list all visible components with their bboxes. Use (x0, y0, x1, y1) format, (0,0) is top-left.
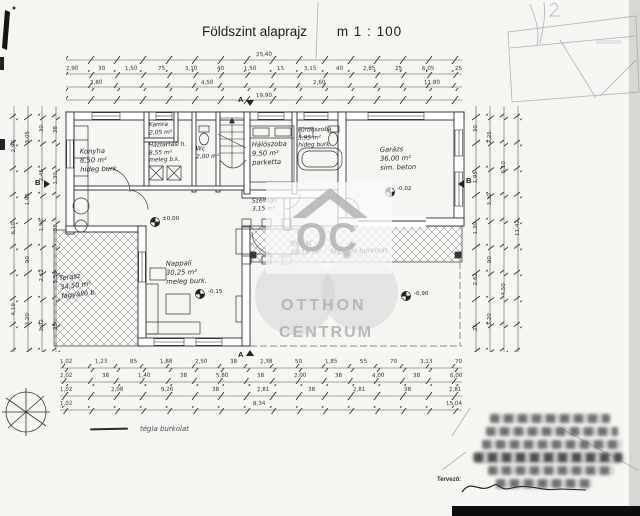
dim-value: 38 (53, 224, 59, 231)
room-label-szelfogo: Szélfogó 3,15 m² (252, 197, 298, 214)
room-label-tornac: Tornác 28,18 m² fagyálló burkolat (290, 236, 420, 257)
dim-value: 2,62 (39, 269, 45, 281)
dim-value: 9,26 (161, 387, 174, 393)
dim-value: 2,60 (313, 80, 326, 86)
dim-value: 3,80 (90, 80, 103, 86)
dim-value: 4,50 (501, 283, 507, 295)
dim-value: 4,00 (372, 373, 385, 379)
dim-value: 90 (25, 256, 31, 263)
room-note: meleg burk. (166, 276, 234, 287)
dim-value: 2,90 (11, 140, 17, 152)
dim-value: 38 (308, 387, 315, 393)
dim-value: 1,20 (487, 313, 493, 325)
room-label-terasz: Terasz 34,50 m² fagyálló b. (59, 268, 118, 301)
room-area: 2,00 m² (196, 153, 224, 161)
dim-value: 1,30 (473, 222, 479, 234)
level-value: -0,90 (414, 291, 428, 297)
legend: tégla burkolat (90, 425, 189, 433)
dim-value: 1,30 (53, 172, 59, 184)
dim-value: 25 (455, 66, 462, 72)
dim-value: 3,02 (39, 319, 45, 331)
room-note: fagyálló burkolat (330, 246, 388, 256)
dim-value: 38 (230, 359, 237, 365)
legend-line-swatch (90, 427, 128, 430)
room-note: meleg b.k. (149, 157, 201, 166)
dim-value: 4,50 (201, 80, 214, 86)
room-label-wc: Wc 2,00 m² (196, 146, 224, 162)
architect-stamp (482, 414, 637, 492)
level-value: -0,15 (208, 289, 222, 295)
dim-value: 3,10 (185, 66, 198, 72)
dim-value: 2,38 (260, 359, 273, 365)
dim-value: 6,10 (11, 222, 17, 234)
dim-value: 2,81 (353, 387, 366, 393)
dim-value: 25 (53, 323, 59, 330)
drawing-title: Földszint alaprajz m 1 : 100 (202, 24, 402, 39)
dim-value: 1,95 (25, 193, 31, 205)
level-value: -0,02 (397, 186, 411, 192)
scanned-floor-plan-page: Földszint alaprajz m 1 : 100 Konyha 8,50… (0, 0, 640, 516)
dim-col-left-mid2: 302,451,502,623,02 (36, 106, 48, 350)
room-label-haztartasi: Háztartási h. 8,55 m² meleg b.k. (149, 141, 202, 165)
dim-row-top-4: 19,90 (66, 93, 462, 99)
dim-value: 3,05 (25, 131, 31, 143)
dim-value: 2,20 (25, 313, 31, 325)
room-note: parketta (252, 157, 310, 167)
dim-value: 4,19 (11, 303, 17, 315)
dim-value: 19,90 (256, 93, 272, 100)
dim-value: 2,81 (257, 387, 270, 393)
stamp-text-row (474, 453, 622, 462)
dim-value: 1,23 (95, 359, 108, 365)
stamp-text-row (486, 427, 618, 436)
dim-value: 70 (455, 359, 462, 365)
dim-value: 1,50 (39, 219, 45, 231)
dim-value: 25,40 (256, 52, 272, 59)
dim-value: 85 (130, 359, 137, 365)
dim-value: 30 (98, 66, 105, 72)
dim-value: 40 (336, 66, 343, 72)
dim-value: 2,08 (111, 387, 124, 393)
dim-col-left-inner: 381,30385,5625 (50, 106, 62, 350)
dim-value: 6,00 (449, 373, 462, 379)
drawing-scale: m 1 : 100 (337, 24, 402, 39)
dim-value: 2,25 (487, 131, 493, 143)
dim-value: 3,30 (487, 193, 493, 205)
dim-value: 11,42 (515, 220, 521, 236)
dim-value: 2,81 (449, 387, 462, 393)
dim-value: 1,02 (60, 387, 73, 393)
dim-col-right-inner: 301,951,302,6225 (470, 106, 482, 350)
dim-value: 2,85 (363, 66, 376, 72)
stamp-text-row (490, 414, 610, 423)
dim-value: 1,50 (125, 66, 138, 72)
dim-value: 2,02 (60, 373, 73, 379)
stamp-text-row (488, 466, 614, 475)
dim-value: 15,04 (446, 401, 462, 408)
text-overlay: Földszint alaprajz m 1 : 100 Konyha 8,50… (0, 0, 640, 516)
dim-row-top-2: 2,90301,50753,10401,50153,15402,85256,05… (66, 66, 462, 72)
stamp-text-row (496, 479, 592, 488)
dim-value: 70 (390, 359, 397, 365)
dim-value: 6,05 (422, 66, 435, 72)
dim-row-bottom-4: 1,028,3415,04 (60, 401, 462, 407)
room-area: 3,15 m² (252, 205, 298, 214)
room-label-kamra: Kamra 2,05 m² (149, 122, 183, 138)
dim-row-bottom-2: 2,02381,40385,80382,00384,00386,00 (60, 373, 462, 379)
dim-value: 1,02 (60, 401, 73, 407)
designer-label: Tervező: (437, 477, 461, 483)
dim-value: 25 (473, 324, 479, 331)
dim-value: 40 (217, 66, 224, 72)
room-label-garazs: Garázs 36,00 m² sim. beton (380, 144, 447, 172)
dim-row-bottom-3: 1,022,089,26382,81382,81382,81 (60, 387, 462, 393)
dim-col-left-mid1: 3,051,95902,20 (22, 106, 34, 350)
dim-value: 38 (102, 373, 109, 379)
stamp-text-row (482, 440, 622, 449)
room-note: hideg burk. (298, 142, 352, 151)
dim-value: 90 (487, 256, 493, 263)
dim-col-right-outer: 11,42 (512, 106, 524, 350)
dim-value: 11,80 (424, 80, 440, 87)
dim-value: 38 (335, 373, 342, 379)
dim-value: 2,62 (473, 273, 479, 285)
dim-value: 3,13 (420, 359, 433, 365)
dim-value: 30 (39, 125, 45, 132)
dim-value: 1,88 (160, 359, 173, 365)
dim-row-top-1: 25,40 (66, 52, 462, 58)
room-area: 28,18 m² (290, 248, 321, 258)
dim-value: 38 (257, 373, 264, 379)
dim-col-right-mid2: 2,253,30901,20 (484, 106, 496, 350)
dim-value: 3,15 (304, 66, 317, 72)
dim-value: 1,50 (244, 66, 257, 72)
room-note: hideg burk. (80, 164, 132, 174)
dim-value: 30 (473, 125, 479, 132)
dim-row-bottom-1: 1,021,23851,882,50382,38501,8555703,1370 (60, 359, 462, 365)
dim-value: 15 (276, 66, 283, 72)
room-area: 2,05 m² (149, 129, 183, 138)
dim-value: 2,90 (66, 66, 79, 72)
page-title: Földszint alaprajz (202, 24, 307, 39)
room-note: sim. beton (380, 162, 446, 173)
dim-value: 2,45 (39, 169, 45, 181)
dim-col-right-mid1: 6,104,50 (498, 106, 510, 350)
dim-value: 38 (53, 126, 59, 133)
dim-value: 25 (395, 66, 402, 72)
dim-value: 1,85 (325, 359, 338, 365)
room-label-konyha: Konyha 8,50 m² hideg burk. (80, 146, 133, 174)
dim-value: 50 (295, 359, 302, 365)
level-value: ±0,00 (162, 216, 179, 222)
dim-value: 38 (413, 373, 420, 379)
dim-col-left-outer: 2,906,104,19 (8, 106, 20, 350)
dim-value: 55 (360, 359, 367, 365)
section-letter-bottom: A (238, 350, 243, 359)
dim-value: 2,50 (195, 359, 208, 365)
dim-value: 75 (158, 66, 165, 72)
dim-value: 1,40 (138, 373, 151, 379)
room-label-furdoszoba: Fürdőszoba 5,95 m² hideg burk. (298, 126, 353, 150)
dim-value: 38 (404, 387, 411, 393)
dim-value: 2,00 (294, 373, 307, 379)
dim-value: 8,34 (253, 401, 266, 407)
dim-value: 38 (179, 373, 186, 379)
dim-value: 5,56 (53, 271, 59, 283)
legend-note: tégla burkolat (140, 425, 189, 433)
dim-value: 38 (212, 387, 219, 393)
dim-value: 5,80 (216, 373, 229, 379)
dim-value: 1,95 (473, 171, 479, 183)
dim-value: 6,10 (501, 161, 507, 173)
dim-row-top-3: 3,804,502,6011,80 (90, 80, 440, 86)
room-label-nappali: Nappali 30,25 m² meleg burk. (166, 258, 235, 286)
dim-value: 1,02 (60, 359, 73, 365)
